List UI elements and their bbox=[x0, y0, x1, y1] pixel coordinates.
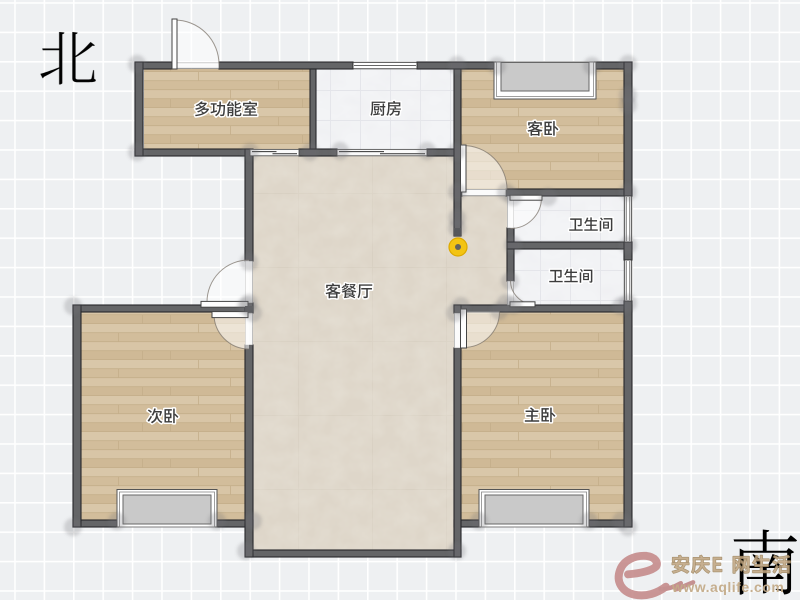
svg-text:www.aqlife.com: www.aqlife.com bbox=[671, 579, 784, 595]
